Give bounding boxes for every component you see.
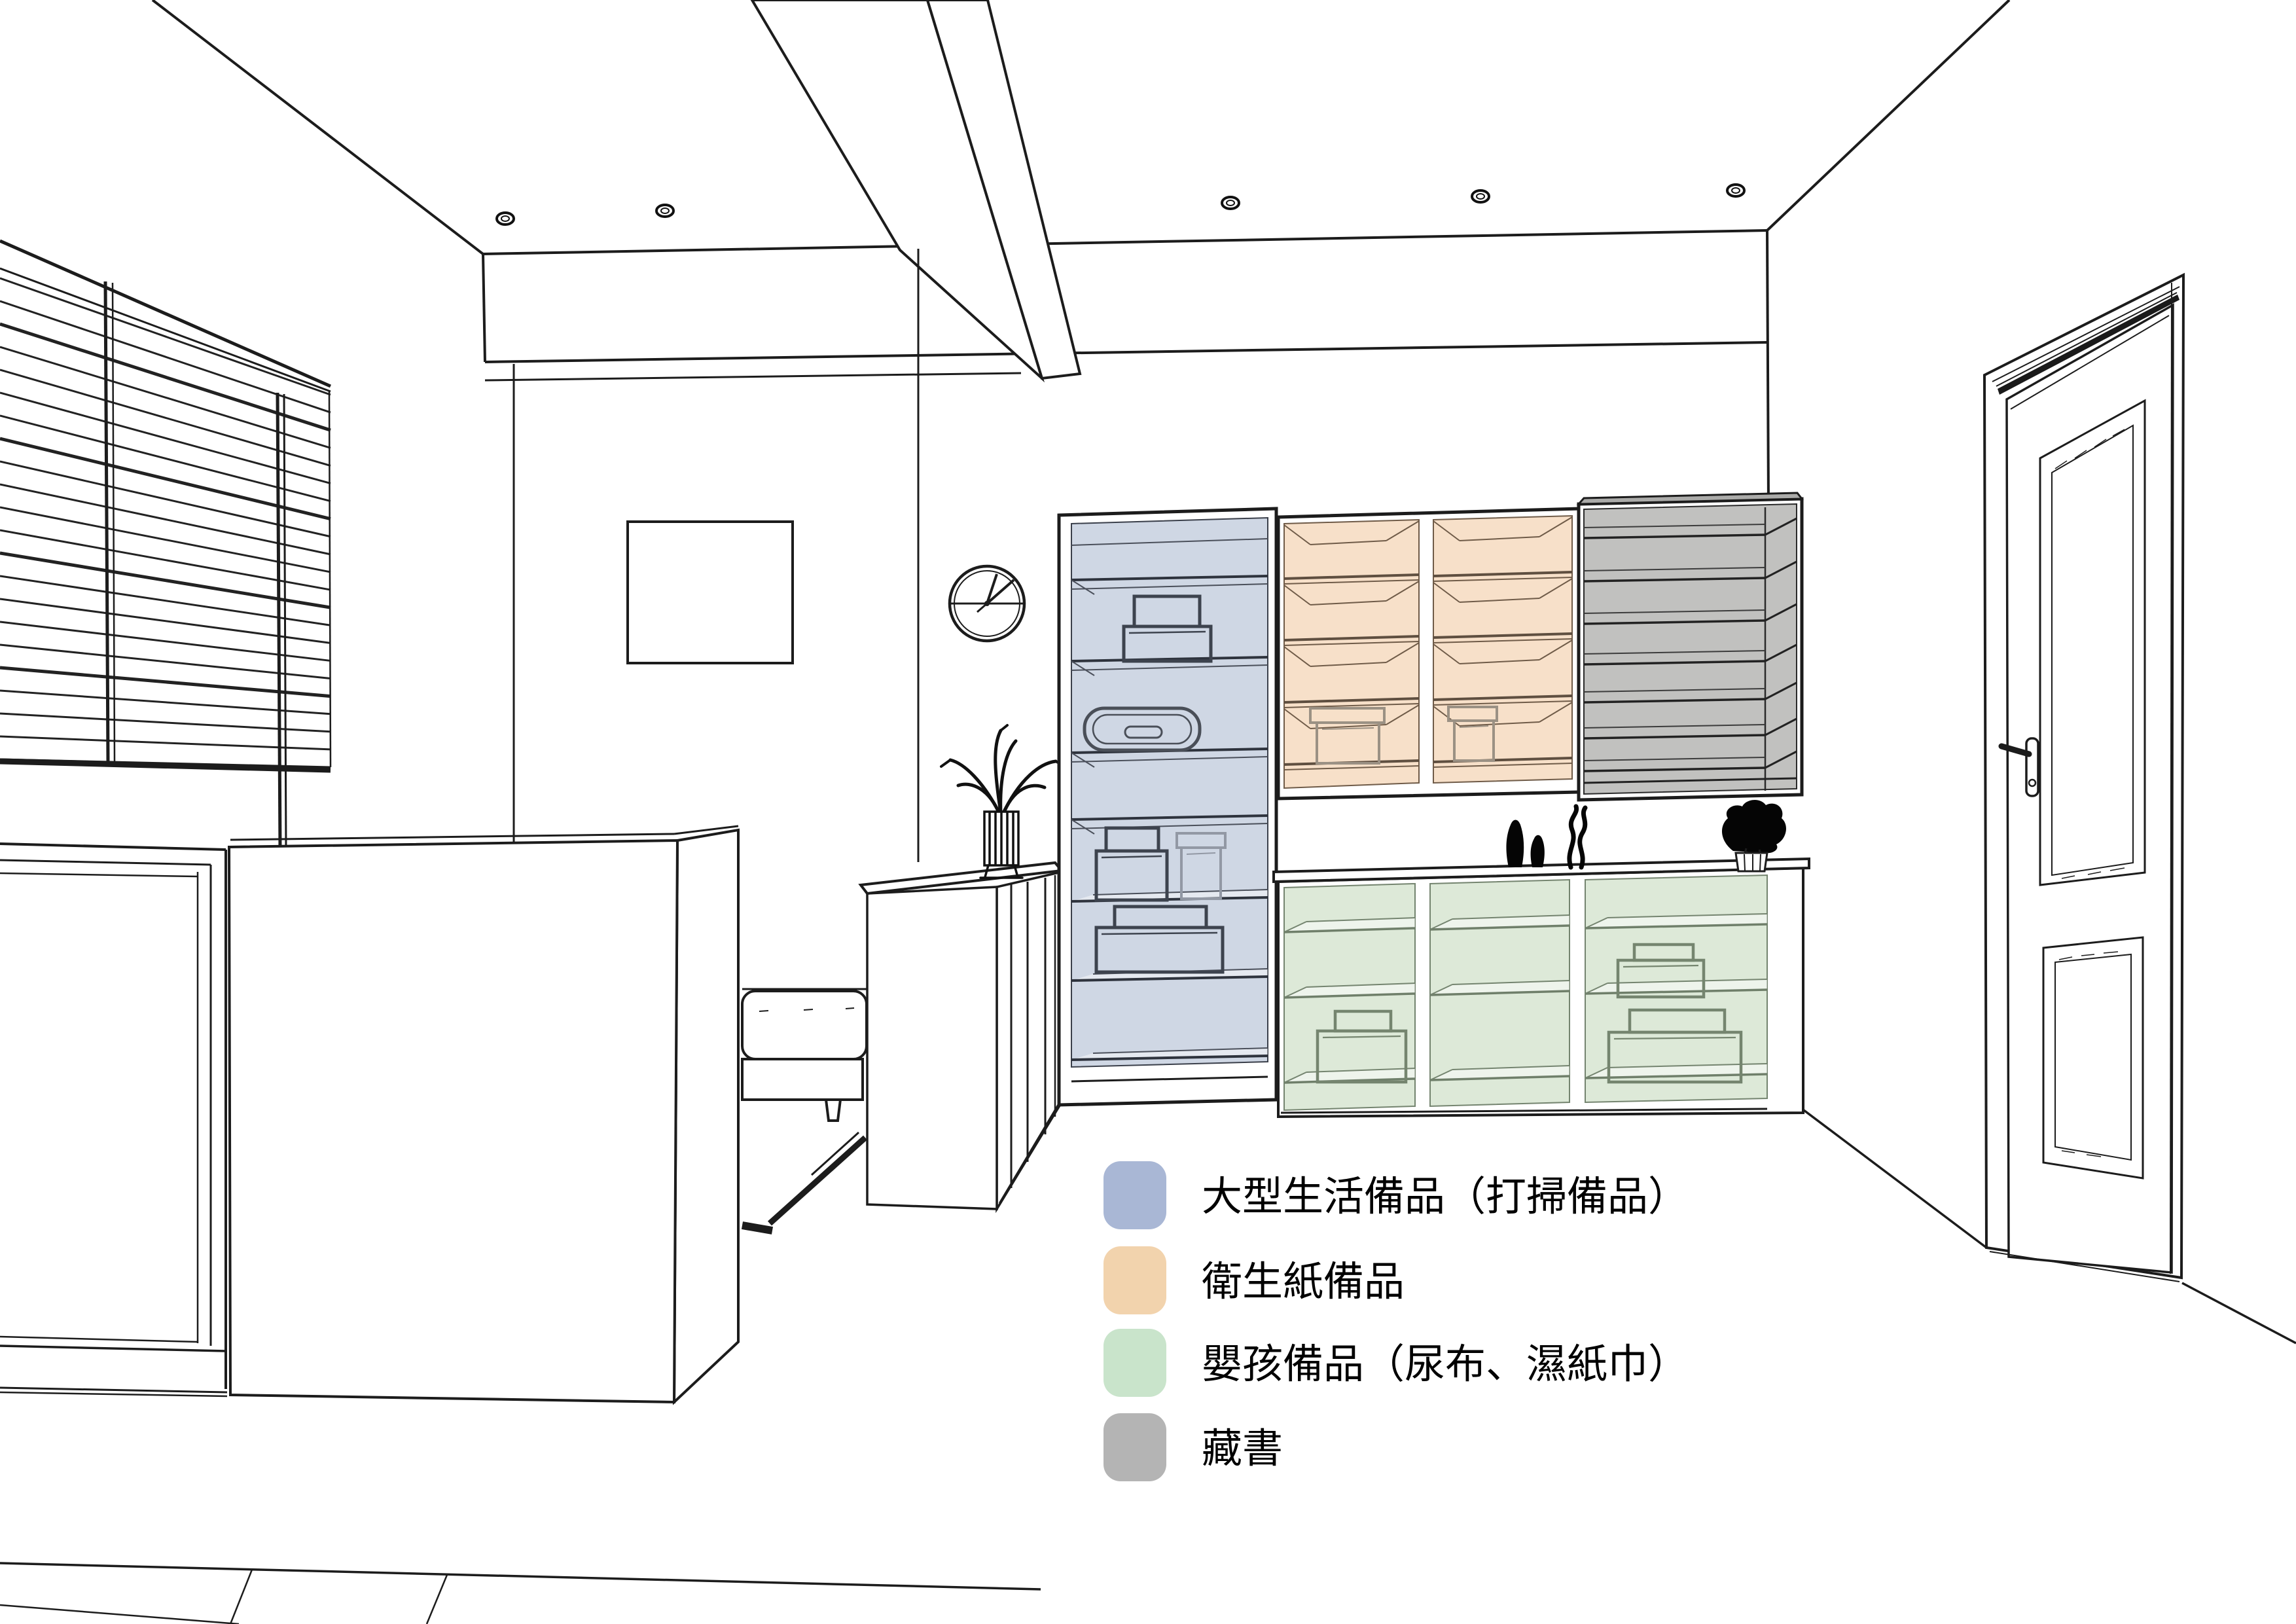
- recessed-light-icons: [497, 185, 1744, 225]
- figurines: [1506, 806, 1585, 867]
- venetian-blinds[interactable]: [0, 241, 331, 851]
- recessed-light-icon: [497, 213, 514, 225]
- bed-base: [742, 1059, 863, 1100]
- sideboard: [861, 863, 1062, 1209]
- recessed-light-icon: [656, 205, 673, 217]
- kitchen-island: [229, 826, 738, 1402]
- legend: 大型生活備品（打掃備品） 衛生紙備品 嬰孩備品（尿布、濕紙巾） 藏書: [1103, 1161, 1689, 1481]
- legend-label-baby-supplies: 嬰孩備品（尿布、濕紙巾）: [1202, 1340, 1689, 1388]
- legend-label-toilet-paper-supplies: 衛生紙備品: [1202, 1257, 1405, 1305]
- picture-frame: [628, 522, 793, 663]
- cabinet-large-supplies-interior: [1071, 518, 1268, 1067]
- legend-swatch-toilet-paper-supplies: [1103, 1246, 1166, 1314]
- legend-swatch-large-living-supplies: [1103, 1161, 1166, 1229]
- legend-label-large-living-supplies: 大型生活備品（打掃備品）: [1202, 1172, 1689, 1220]
- lower-window: [0, 844, 227, 1396]
- cabinet-large-supplies: [1059, 509, 1276, 1105]
- ceiling-beam: [752, 0, 1080, 378]
- wall-clock-icon: [950, 566, 1024, 641]
- mattress: [742, 991, 867, 1059]
- legend-label-book-collection: 藏書: [1202, 1424, 1283, 1472]
- recessed-light-icon: [1472, 190, 1489, 202]
- interior-elevation-diagram: 大型生活備品（打掃備品） 衛生紙備品 嬰孩備品（尿布、濕紙巾） 藏書: [0, 0, 2296, 1624]
- door[interactable]: [1984, 275, 2183, 1282]
- recessed-light-icon: [1222, 197, 1239, 209]
- bed-bench: [742, 989, 867, 1231]
- ceiling: [152, 0, 2009, 503]
- recessed-light-icon: [1727, 185, 1744, 196]
- cabinet-baby: [1274, 859, 1809, 1117]
- bed-leg: [826, 1100, 840, 1121]
- cabinet-toilet-paper-left-interior: [1284, 520, 1419, 788]
- blind-slats: [0, 278, 331, 767]
- legend-swatch-book-collection: [1103, 1413, 1166, 1481]
- cabinet-books: [1579, 493, 1802, 800]
- window-sill: [0, 1346, 226, 1351]
- legend-swatch-baby-supplies: [1103, 1329, 1166, 1397]
- cabinet-toilet-paper: [1278, 509, 1581, 799]
- wall-corner-line: [1767, 230, 1768, 503]
